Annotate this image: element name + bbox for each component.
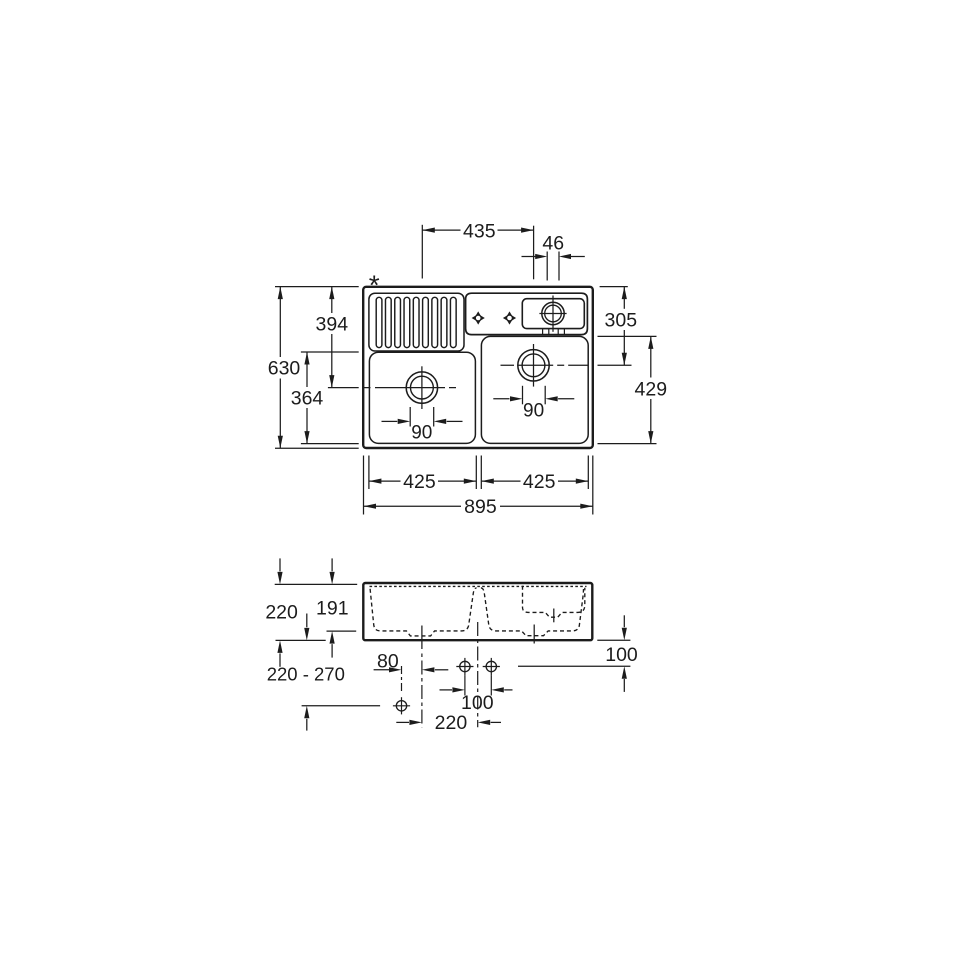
svg-text:630: 630	[268, 358, 301, 380]
svg-text:435: 435	[463, 220, 496, 242]
svg-text:100: 100	[605, 644, 638, 666]
svg-text:220: 220	[435, 712, 468, 734]
svg-text:191: 191	[316, 598, 349, 620]
svg-text:394: 394	[316, 314, 349, 336]
svg-text:425: 425	[403, 471, 436, 493]
svg-text:46: 46	[542, 233, 564, 255]
svg-text:90: 90	[523, 401, 544, 422]
svg-text:895: 895	[464, 496, 497, 518]
svg-text:90: 90	[411, 422, 432, 443]
svg-text:305: 305	[605, 309, 638, 331]
svg-text:429: 429	[635, 378, 668, 400]
svg-text:220: 220	[265, 601, 298, 623]
svg-text:220 - 270: 220 - 270	[267, 663, 345, 684]
svg-text:100: 100	[461, 692, 494, 714]
svg-text:425: 425	[523, 471, 556, 493]
svg-text:364: 364	[291, 387, 324, 409]
